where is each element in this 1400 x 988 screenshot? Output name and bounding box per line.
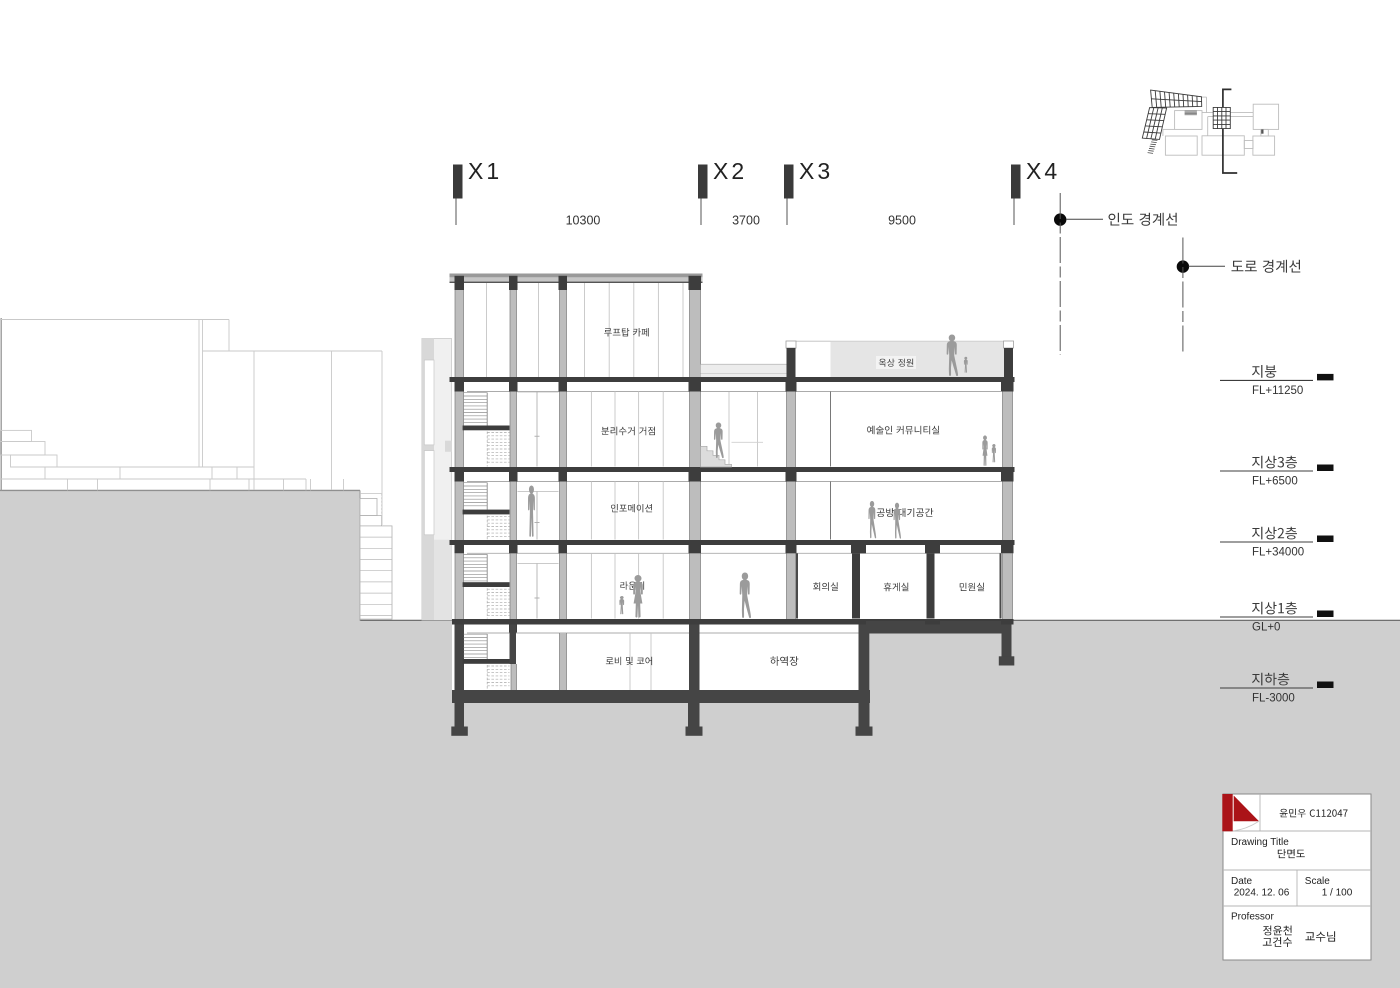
- svg-text:10300: 10300: [566, 214, 601, 228]
- svg-text:Date: Date: [1231, 876, 1253, 887]
- svg-text:2024. 12. 06: 2024. 12. 06: [1234, 888, 1290, 899]
- svg-text:FL-3000: FL-3000: [1252, 693, 1295, 705]
- svg-text:3700: 3700: [732, 214, 760, 228]
- svg-text:Scale: Scale: [1305, 876, 1330, 887]
- svg-text:X1: X1: [468, 158, 502, 184]
- svg-text:GL+0: GL+0: [1252, 622, 1280, 634]
- svg-text:X3: X3: [799, 158, 833, 184]
- svg-text:Drawing Title: Drawing Title: [1231, 837, 1289, 848]
- svg-text:9500: 9500: [888, 214, 916, 228]
- svg-text:Professor: Professor: [1231, 912, 1274, 923]
- svg-text:FL+11250: FL+11250: [1252, 385, 1303, 397]
- svg-text:FL+6500: FL+6500: [1252, 476, 1298, 488]
- svg-text:X2: X2: [713, 158, 747, 184]
- svg-text:1 / 100: 1 / 100: [1322, 888, 1353, 899]
- svg-text:FL+34000: FL+34000: [1252, 547, 1304, 559]
- svg-text:X4: X4: [1026, 158, 1060, 184]
